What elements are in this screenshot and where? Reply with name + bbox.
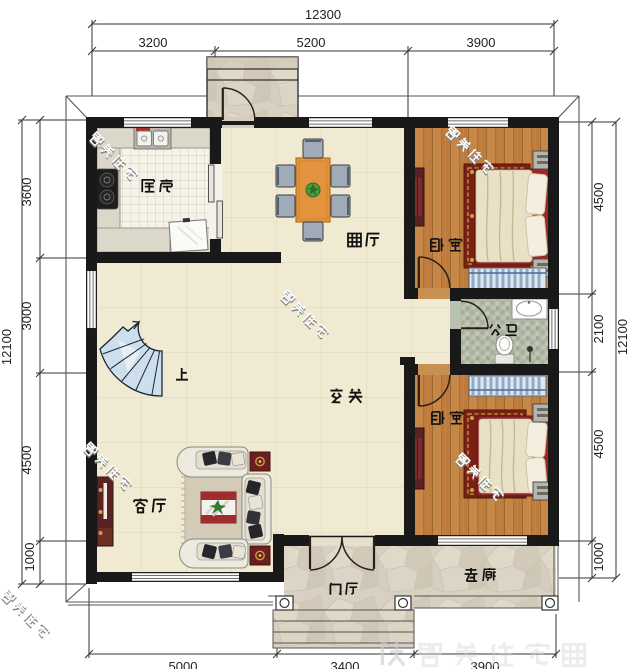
svg-text:5000: 5000 xyxy=(169,659,198,669)
svg-text:1000: 1000 xyxy=(591,543,606,572)
svg-text:3400: 3400 xyxy=(331,659,360,669)
svg-text:2100: 2100 xyxy=(591,315,606,344)
svg-text:3200: 3200 xyxy=(139,35,168,50)
svg-text:4500: 4500 xyxy=(591,183,606,212)
svg-text:3000: 3000 xyxy=(19,302,34,331)
svg-text:4500: 4500 xyxy=(19,446,34,475)
svg-text:4500: 4500 xyxy=(591,430,606,459)
svg-text:12100: 12100 xyxy=(0,329,14,365)
svg-text:12300: 12300 xyxy=(305,7,341,22)
svg-text:5200: 5200 xyxy=(297,35,326,50)
svg-text:3900: 3900 xyxy=(467,35,496,50)
svg-text:12100: 12100 xyxy=(615,319,630,355)
svg-text:3600: 3600 xyxy=(19,178,34,207)
svg-text:1000: 1000 xyxy=(22,543,37,572)
